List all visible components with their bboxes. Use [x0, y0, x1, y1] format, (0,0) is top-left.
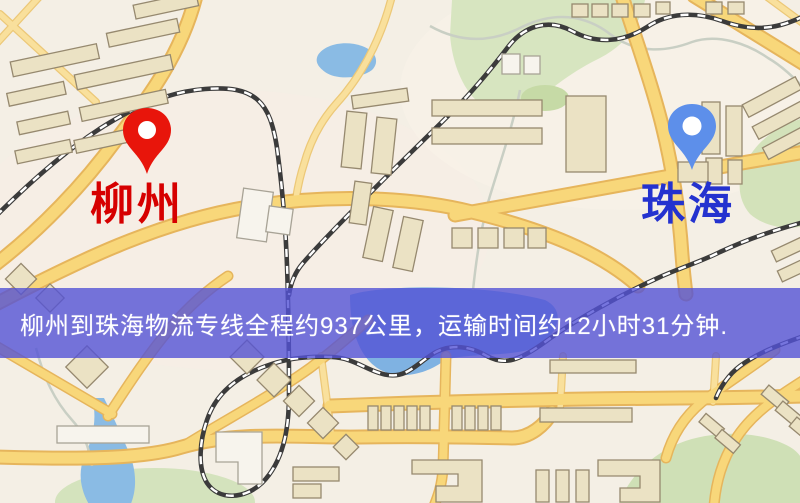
origin-pin-hole	[138, 121, 156, 139]
destination-label: 珠海	[641, 180, 735, 229]
route-info-banner: 柳州到珠海物流专线全程约937公里，运输时间约12小时31分钟.	[0, 288, 800, 358]
origin-label: 柳州	[90, 180, 184, 229]
route-info-text: 柳州到珠海物流专线全程约937公里，运输时间约12小时31分钟.	[0, 306, 728, 341]
destination-pin-hole	[683, 117, 702, 136]
map-canvas: 柳州 珠海	[0, 0, 800, 503]
map-screenshot: 柳州 珠海 柳州到珠海物流专线全程约937公里，运输时间约12小时31分钟.	[0, 0, 800, 503]
